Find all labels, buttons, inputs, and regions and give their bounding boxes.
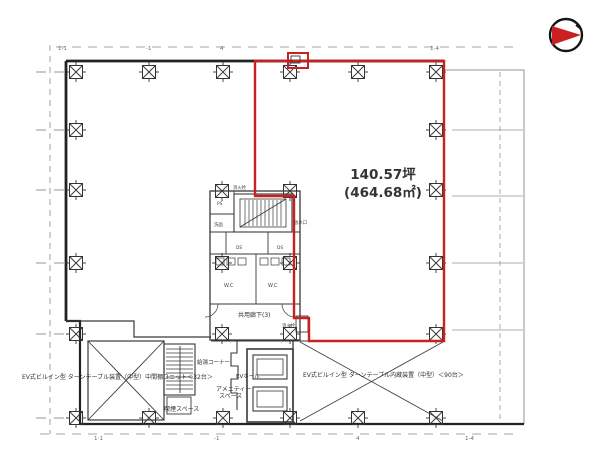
washroom-label: 洗面 xyxy=(214,221,223,228)
lower-zone xyxy=(88,341,443,422)
floorplan-canvas: 1-1 -1 4 1-4 1-1 -1 4 1-4 xyxy=(0,0,615,468)
north-arrow-icon xyxy=(550,19,582,51)
plan-labels: EV式ビルイン型 ターンテーブル装置（中型）中間棚ユニット＜32台＞ EV式ビル… xyxy=(22,184,464,413)
wc-left-label: W.C xyxy=(224,283,234,289)
turntable-area-right-cross xyxy=(300,342,443,421)
right-wing-floor-lines xyxy=(452,130,523,330)
hot-water-corner-label: 給湯コーナー xyxy=(197,358,230,366)
smoking-space-label: 喫煙スペース xyxy=(164,405,199,413)
ps-label: PS xyxy=(217,201,223,207)
parking-spec-left-label: EV式ビルイン型 ターンテーブル装置（中型）中間棚ユニット＜32台＞ xyxy=(22,373,213,381)
area-size-tsubo: 140.57坪 xyxy=(350,167,416,183)
water-outlet-label: 放水口 xyxy=(294,219,307,226)
main-stairs xyxy=(234,194,292,232)
wc-right-label: W.C xyxy=(268,283,278,289)
grid-label: 1-4 xyxy=(465,436,474,442)
grid-label: 1-1 xyxy=(58,46,67,52)
amenity-space-label-line2: スペース xyxy=(219,393,242,400)
stair-treads xyxy=(166,346,193,393)
area-size-sqm: (464.68㎡) xyxy=(344,184,422,201)
ds-right-label: DS xyxy=(277,245,283,251)
grid-label: -1 xyxy=(146,46,151,52)
elevator-hall-label: EVホール xyxy=(236,373,260,380)
grid-label: 1-1 xyxy=(94,436,103,442)
common-corridor-label: 共用廊下(3) xyxy=(238,311,271,319)
grid-label: 1-4 xyxy=(430,46,439,52)
fire-hydrant-label-top: 消火栓 xyxy=(233,184,247,191)
highlight-area: 140.57坪 (464.68㎡) xyxy=(255,53,444,341)
floorplan-page: 1-1 -1 4 1-4 1-1 -1 4 1-4 xyxy=(0,0,615,468)
fire-hydrant-label-bottom: 消火栓 xyxy=(282,322,296,329)
right-wing-outline xyxy=(444,70,524,424)
amenity-space-label-line1: アメニティー xyxy=(216,386,251,393)
grid-label: -1 xyxy=(214,436,219,442)
grid-label: 4 xyxy=(220,46,224,52)
ds-left-label: DS xyxy=(236,245,242,251)
grid-label: 4 xyxy=(356,436,360,442)
wc-fixtures xyxy=(216,258,290,265)
door-arc xyxy=(205,304,218,317)
parking-spec-right-label: EV式ビルイン型 ターンテーブル内蔵装置（中型）＜90台＞ xyxy=(303,371,464,379)
